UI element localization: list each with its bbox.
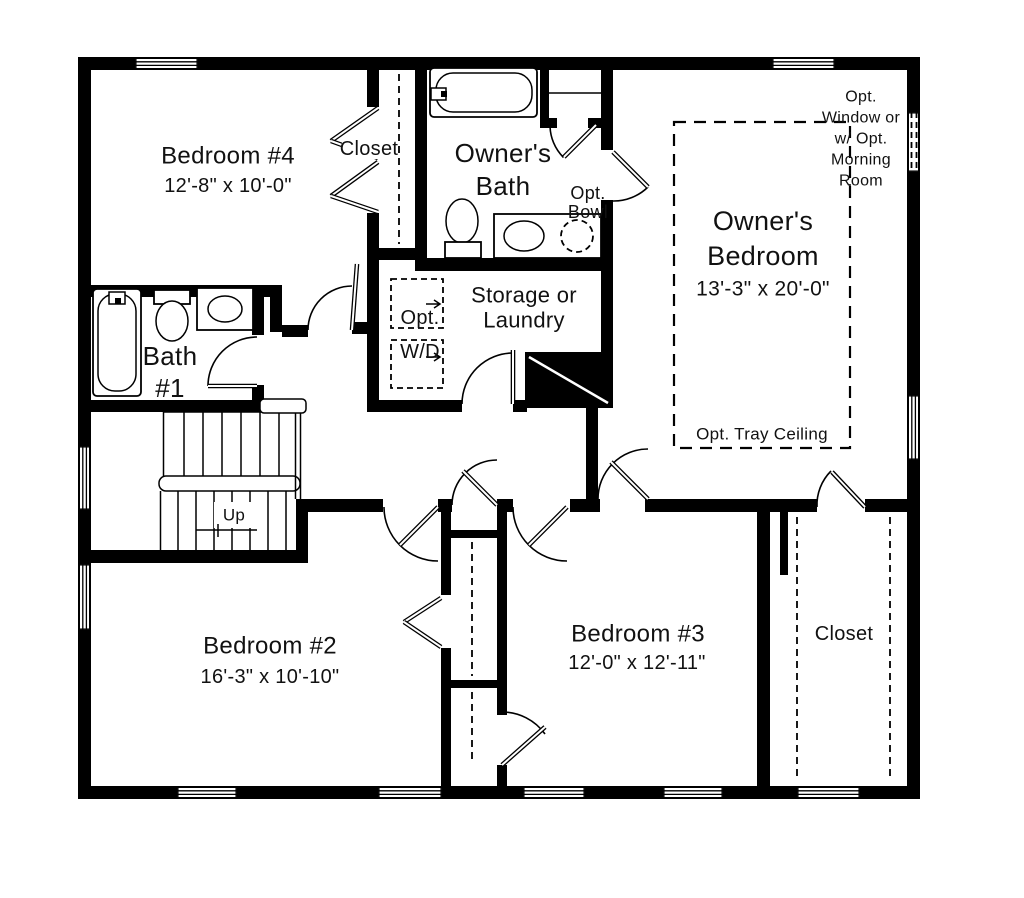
owners-bath-label-line2: Bath	[476, 171, 531, 201]
window-note-line1: Opt.	[845, 89, 876, 106]
stair-rail	[159, 476, 300, 491]
bathtub	[93, 289, 141, 396]
bathtub	[430, 68, 537, 117]
opt-wd-label-line2: W/D	[400, 341, 440, 363]
owners-bedroom-label-line2: Bedroom	[707, 241, 819, 271]
vanity	[197, 288, 253, 330]
toilet	[445, 199, 481, 258]
bath1-label-line1: Bath	[143, 341, 198, 371]
bedroom3-dims: 12'-0" x 12'-11"	[568, 652, 705, 674]
window-note-line3: w/ Opt.	[834, 131, 888, 148]
owners-bath-label-line1: Owner's	[455, 138, 552, 168]
tray-ceiling-note: Opt. Tray Ceiling	[696, 425, 828, 444]
opt-wd-label-line1: Opt.	[401, 307, 440, 329]
stairs-up-label: Up	[223, 506, 245, 525]
owners-bedroom-dims: 13'-3" x 20'-0"	[696, 278, 830, 301]
storage-label-line1: Storage or	[471, 283, 577, 308]
owners-bedroom-label-line1: Owner's	[713, 206, 813, 236]
sink-bowl	[208, 296, 242, 322]
bedroom2-dims: 16'-3" x 10'-10"	[201, 666, 340, 688]
chase-black-box	[525, 352, 613, 408]
window-note-line4: Morning	[831, 152, 891, 169]
opt-bowl-label-line1: Opt.	[570, 183, 605, 203]
window-note-line2: Window or	[822, 110, 901, 127]
bedroom3-label: Bedroom #3	[571, 621, 705, 648]
bedroom2-label: Bedroom #2	[203, 633, 337, 660]
opt-bowl-label-line2: Bowl	[568, 202, 608, 222]
floor-plan-page: Bedroom #4 12'-8" x 10'-0" Closet Owner'…	[0, 0, 1024, 898]
bedroom4-closet-label: Closet	[340, 138, 399, 160]
floor-plan-drawing: Bedroom #4 12'-8" x 10'-0" Closet Owner'…	[0, 0, 1024, 898]
window-note-line5: Room	[839, 173, 883, 190]
storage-label-line2: Laundry	[483, 308, 565, 333]
stair-landing-cap	[260, 399, 306, 413]
owners-closet-label: Closet	[815, 623, 874, 645]
bath1-label-line2: #1	[155, 373, 185, 403]
bedroom4-label: Bedroom #4	[161, 143, 295, 170]
sink-bowl	[504, 221, 544, 251]
toilet	[154, 290, 190, 341]
bedroom4-dims: 12'-8" x 10'-0"	[164, 175, 292, 197]
